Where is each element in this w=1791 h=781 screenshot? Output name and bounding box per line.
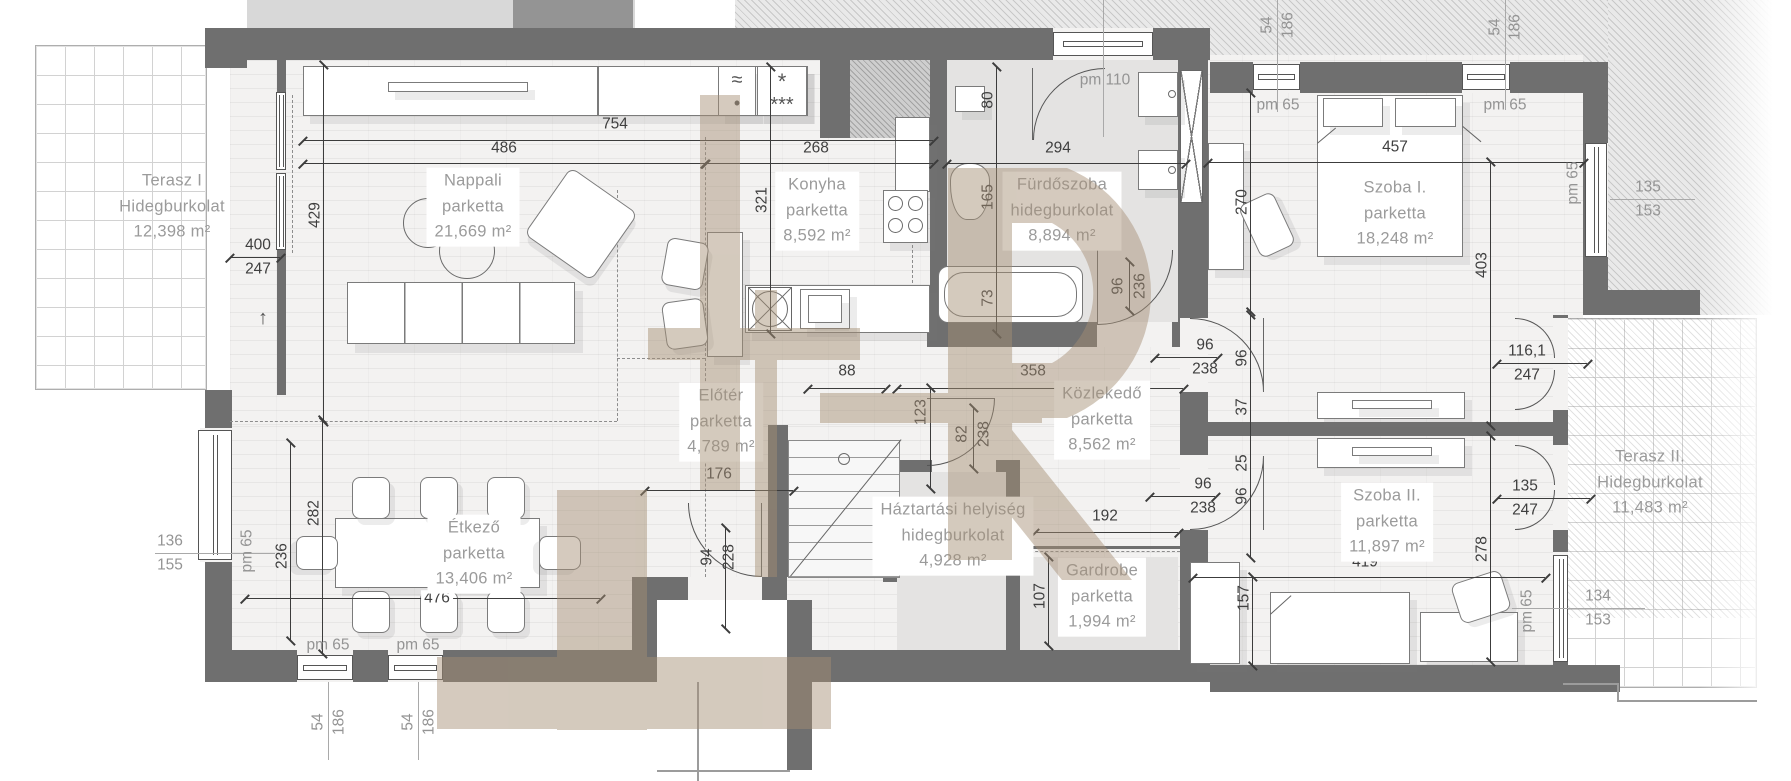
pillow [1395,98,1456,127]
dashh [617,358,705,359]
room-label-szoba2: Szoba II.parketta11,897 m² [1341,483,1433,562]
stair-marker [838,453,850,465]
dim: pm 65 [396,637,439,653]
room-area: 13,406 m² [436,567,513,593]
room-label-eloter: Előtérparketta4,789 m² [679,383,763,462]
dimline-96-236 [1129,262,1130,310]
tv-szoba2 [1352,447,1432,456]
dimline-419 [1193,577,1545,578]
right-fade [1700,0,1791,700]
dim: 96 [1234,487,1250,504]
dim: 278 [1474,536,1490,562]
dim: 186 [1280,12,1296,38]
dim: 94 [699,548,715,565]
dim: 238 [976,421,992,447]
wall [820,28,850,138]
dim: pm 65 [306,637,349,653]
dim: 429 [307,202,323,228]
dimline-403 [1490,162,1491,425]
circ [1168,90,1176,98]
dim: 321 [754,187,770,213]
line [1097,250,1098,325]
room-area: 21,669 m² [435,220,512,246]
line [1032,68,1033,140]
dim: pm 65 [1519,589,1535,632]
wall [845,28,1210,60]
dim2: 116,1247 [1508,344,1546,383]
wall [277,55,286,95]
line [1263,456,1264,530]
dim: 25 [1234,454,1250,471]
dim2: 400247 [245,238,271,277]
window-bottom-a [297,655,353,680]
dv [418,682,419,760]
room-label-furdoszoba: Fürdőszobahidegburkolat8,894 m² [1003,172,1122,251]
chair [539,536,581,570]
dim: 236 [274,543,290,569]
dim: 82 [954,425,970,442]
dimline-486 [303,163,705,164]
sym: *** [770,95,793,115]
wall [1210,665,1620,692]
dashh [230,421,617,422]
room-area: 11,483 m² [1597,496,1703,522]
room-finish: parketta [435,194,512,220]
sym: • [734,94,740,112]
dim: 294 [1045,140,1071,156]
dimline-88 [808,388,885,389]
room-area: 8,592 m² [783,224,851,250]
wall [1583,290,1700,315]
room-finish: parketta [783,198,851,224]
tv-szoba1 [1352,400,1432,409]
dim: 88 [838,363,855,379]
room-finish: parketta [687,409,755,435]
room-label-konyha: Konyhaparketta8,592 m² [775,172,859,251]
dim: 54 [1259,16,1275,33]
dv [328,682,329,760]
dimline-294 [947,163,1185,164]
dim: 486 [491,140,517,156]
room-label-kozlekedo: Közlekedőparketta8,562 m² [1054,381,1150,460]
sofa [347,282,575,344]
dim: 165 [980,184,996,210]
open [1097,322,1172,347]
open [1553,445,1568,530]
room-name: Közlekedő [1062,382,1142,408]
dim: 228 [721,544,737,570]
chair [296,536,338,570]
dv [1277,0,1278,112]
circ [908,196,923,211]
pillow [1323,98,1383,127]
room-label-etkezo: Étkezőparketta13,406 m² [428,515,521,594]
room-label-terasz1: Terasz IHidegburkolat12,398 m² [119,169,225,246]
tline [1563,683,1617,685]
dimline-192 [1035,532,1178,533]
dim: 236 [1132,273,1148,299]
line [761,503,762,577]
dimline-135door [1497,498,1590,499]
room-area: 8,894 m² [1011,224,1114,250]
room-name: Előtér [687,384,755,410]
chair [420,477,458,519]
wall [205,28,830,60]
dim: 457 [1382,139,1408,155]
wall [277,250,286,395]
dim: 54 [400,713,416,730]
room-area: 4,928 m² [880,549,1025,575]
dim: pm 65 [1483,97,1526,113]
dim: 282 [306,500,322,526]
dim2: 134153 [1585,589,1611,628]
dim: 96 [1234,349,1250,366]
dim: 192 [1092,508,1118,524]
room-area: 4,789 m² [687,435,755,461]
dimline-123 [930,388,931,488]
room-area: 11,897 m² [1349,535,1425,561]
wall [768,425,788,577]
dim: 176 [706,466,732,482]
window-szoba1-b [1462,64,1510,90]
counter-strip [895,117,930,192]
wall [205,28,247,68]
dim: 186 [331,709,347,735]
dim: 73 [980,289,996,306]
dimline-429 [323,65,324,421]
window-nappali-b [276,173,286,250]
bed-szoba2 [1270,592,1410,664]
wall [632,577,657,682]
room-finish: parketta [1357,201,1434,227]
dim: 268 [803,140,829,156]
room-name: Terasz II. [1597,445,1703,471]
room-finish: parketta [1062,407,1142,433]
dim2: 135247 [1512,479,1538,518]
wall [787,650,1210,682]
dim2: 136155 [157,534,183,573]
dim: 96 [1110,277,1126,294]
floor-plan-canvas: ≈•****7544862682944573588817647619241942… [0,0,1791,781]
room-finish: hidegburkolat [1011,198,1114,224]
room-finish: Hidegburkolat [119,194,225,220]
room-label-gardrobe: Gardrobeparketta1,994 m² [1058,558,1146,637]
room-label-terasz2: Terasz II.Hidegburkolat11,483 m² [1597,445,1703,522]
tline [657,770,790,772]
room-name: Szoba I. [1357,176,1434,202]
tline [1617,700,1757,702]
wall [787,600,812,770]
bathtub [938,266,1083,323]
chair [661,297,709,350]
circ [908,218,923,233]
dimline-236 [290,443,291,640]
room-name: Háztartási helyiség [880,498,1025,524]
room-name: Terasz I [119,169,225,195]
room-finish: parketta [1349,509,1425,535]
dimline-82-238 [973,408,974,468]
dashv [705,137,706,577]
window-nappali-a [276,92,286,170]
wall [1020,546,1180,549]
room-name: Gardrobe [1066,559,1138,585]
dim2: 135153 [1635,180,1661,219]
circ [888,218,903,233]
room-label-szoba1: Szoba I.parketta18,248 m² [1349,175,1442,254]
dimline-176 [645,490,793,491]
room-label-haztartasi: Háztartási helyiséghidegburkolat4,928 m² [872,497,1033,576]
dim: 358 [1020,363,1046,379]
dashv [292,95,293,253]
dim: 754 [602,116,628,132]
dim: 54 [1487,18,1503,35]
entry-porch [657,600,787,682]
sym: ≈ [732,70,743,90]
window-etkezo-west [198,430,232,560]
bar-table [707,232,743,357]
dim: pm 110 [1080,72,1131,88]
room-area: 1,994 m² [1066,610,1138,636]
dimline-94-228 [725,528,726,628]
dim: 54 [310,713,326,730]
room-name: Szoba II. [1349,484,1425,510]
dv [1103,0,1104,137]
room-area: 18,248 m² [1357,227,1434,253]
furn [808,295,842,323]
dim: pm 65 [239,529,255,572]
tline [697,682,699,781]
tv-nappali [388,82,528,92]
dim: 270 [1234,189,1250,215]
window-right-top [1585,143,1607,257]
room-area: 8,562 m² [1062,433,1142,459]
dim: 107 [1032,583,1048,609]
room-name: Fürdőszoba [1011,173,1114,199]
dimline-754 [303,140,933,141]
chair [660,237,710,292]
dim2: 96238 [1190,477,1216,516]
dim: 186 [1507,14,1523,40]
dimline-268 [705,163,933,164]
circ [888,196,903,211]
wall [1208,422,1568,436]
room-area: 12,398 m² [119,220,225,246]
dim: 123 [913,399,929,425]
room-name: Nappali [435,169,512,195]
window-bottom-b [388,655,443,680]
sym: * [778,71,787,93]
dim: 37 [1234,398,1250,415]
dim: 186 [421,709,437,735]
chair [487,477,525,519]
dimline-282 [322,420,323,653]
room-finish: Hidegburkolat [1597,470,1703,496]
dim2: 96238 [1192,338,1218,377]
chair [352,477,390,519]
room-finish: hidegburkolat [880,523,1025,549]
room-finish: parketta [436,541,513,567]
duct-xbox [1180,70,1203,203]
dim: 80 [980,91,996,108]
north-arrow: ↑ [258,308,268,328]
room-name: Étkező [436,516,513,542]
circ [1168,166,1176,174]
dim: pm 65 [1565,161,1581,204]
room-name: Konyha [783,173,851,199]
dim: pm 65 [1256,97,1299,113]
room-finish: parketta [1066,584,1138,610]
line [927,398,995,399]
dim: 403 [1474,252,1490,278]
room-label-nappali: Nappaliparketta21,669 m² [427,168,520,247]
dimline-457 [1208,162,1583,163]
dim: 157 [1236,585,1252,611]
line [1263,318,1264,392]
